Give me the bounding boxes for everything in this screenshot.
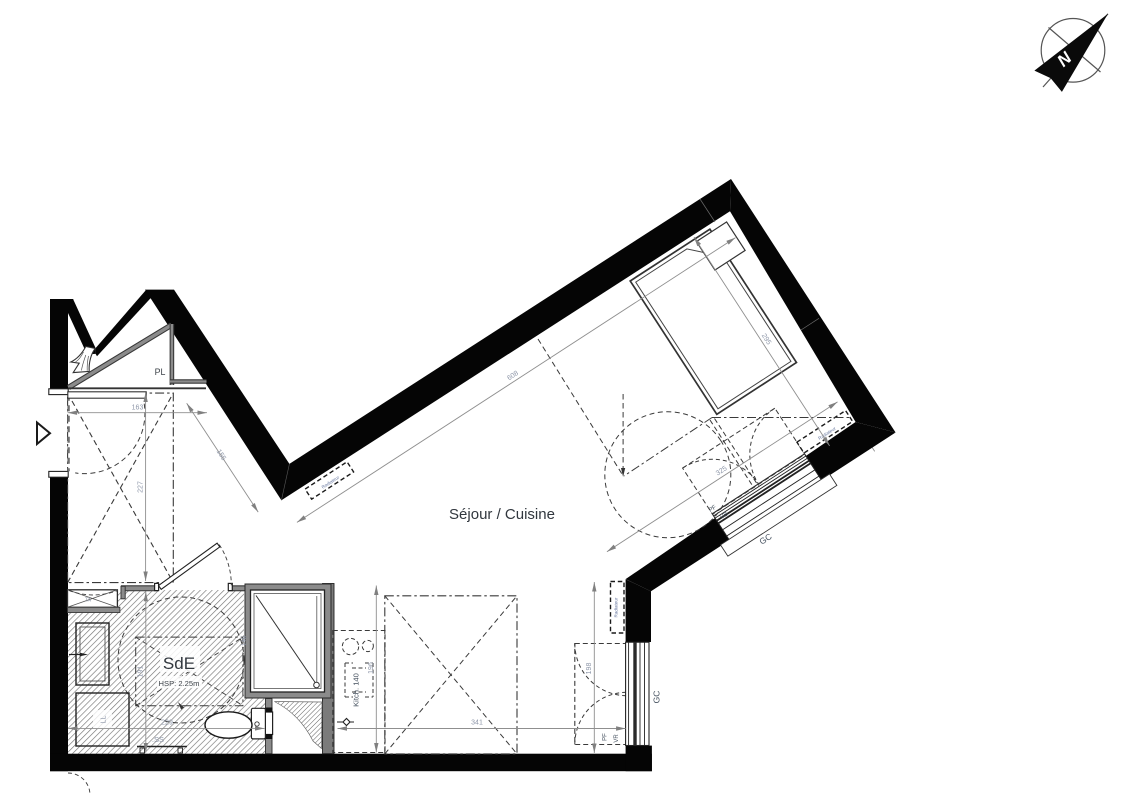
svg-text:LL: LL: [99, 716, 108, 724]
svg-text:HSP: 2.25m: HSP: 2.25m: [159, 679, 200, 688]
svg-text:.SS: .SS: [152, 735, 164, 744]
svg-text:VR: VR: [614, 734, 620, 743]
svg-text:163: 163: [132, 405, 144, 412]
svg-text:229: 229: [161, 720, 173, 727]
svg-text:227: 227: [137, 481, 144, 493]
svg-text:SdE: SdE: [163, 654, 195, 673]
svg-text:PL: PL: [155, 367, 166, 377]
svg-text:GC: GC: [652, 691, 662, 704]
svg-text:341: 341: [471, 720, 483, 727]
svg-text:146: 146: [242, 635, 248, 646]
svg-text:TA: TA: [85, 597, 92, 603]
svg-text:Radiateur: Radiateur: [614, 597, 619, 617]
svg-text:196: 196: [368, 662, 375, 674]
svg-text:Kitch. 140: Kitch. 140: [352, 673, 361, 707]
svg-text:Séjour / Cuisine: Séjour / Cuisine: [449, 506, 555, 523]
svg-text:198: 198: [586, 663, 593, 675]
svg-text:191: 191: [137, 666, 144, 678]
svg-text:PF: PF: [603, 733, 609, 741]
